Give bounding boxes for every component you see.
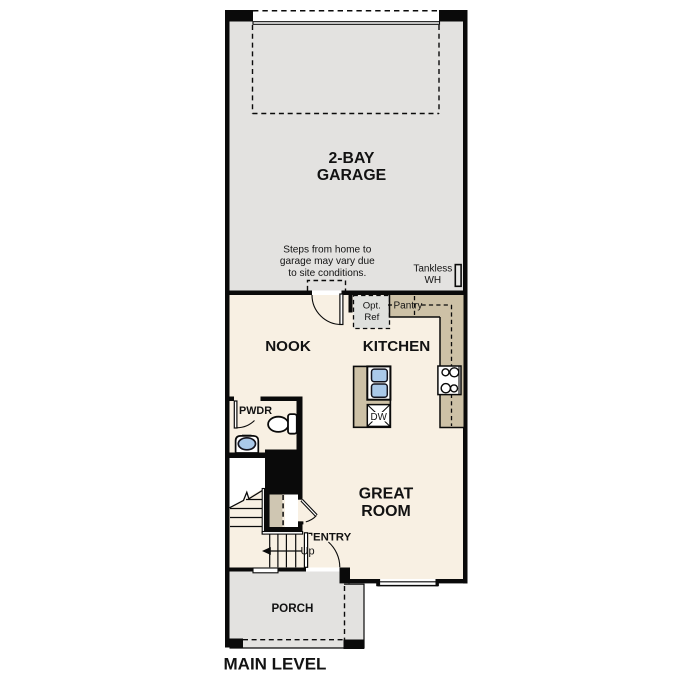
svg-text:Ref: Ref — [364, 312, 379, 323]
svg-text:to site conditions.: to site conditions. — [288, 268, 366, 279]
svg-text:KITCHEN: KITCHEN — [363, 338, 431, 355]
svg-text:2-BAY: 2-BAY — [329, 150, 375, 167]
svg-text:PWDR: PWDR — [239, 405, 272, 417]
svg-text:garage may vary due: garage may vary due — [280, 256, 375, 267]
svg-text:PORCH: PORCH — [271, 602, 313, 615]
svg-text:NOOK: NOOK — [265, 338, 311, 355]
svg-text:Up: Up — [301, 546, 315, 558]
svg-text:GARAGE: GARAGE — [317, 167, 386, 184]
svg-text:ROOM: ROOM — [361, 503, 410, 520]
svg-text:ENTRY: ENTRY — [313, 531, 352, 543]
svg-text:WH: WH — [424, 275, 441, 286]
svg-text:MAIN LEVEL: MAIN LEVEL — [224, 655, 327, 674]
svg-text:GREAT: GREAT — [359, 486, 414, 503]
svg-text:Tankless: Tankless — [413, 264, 452, 275]
svg-text:Steps from home to: Steps from home to — [283, 245, 371, 256]
svg-text:Opt.: Opt. — [363, 301, 381, 312]
svg-text:Pantry: Pantry — [394, 301, 423, 312]
svg-text:DW: DW — [371, 412, 388, 423]
